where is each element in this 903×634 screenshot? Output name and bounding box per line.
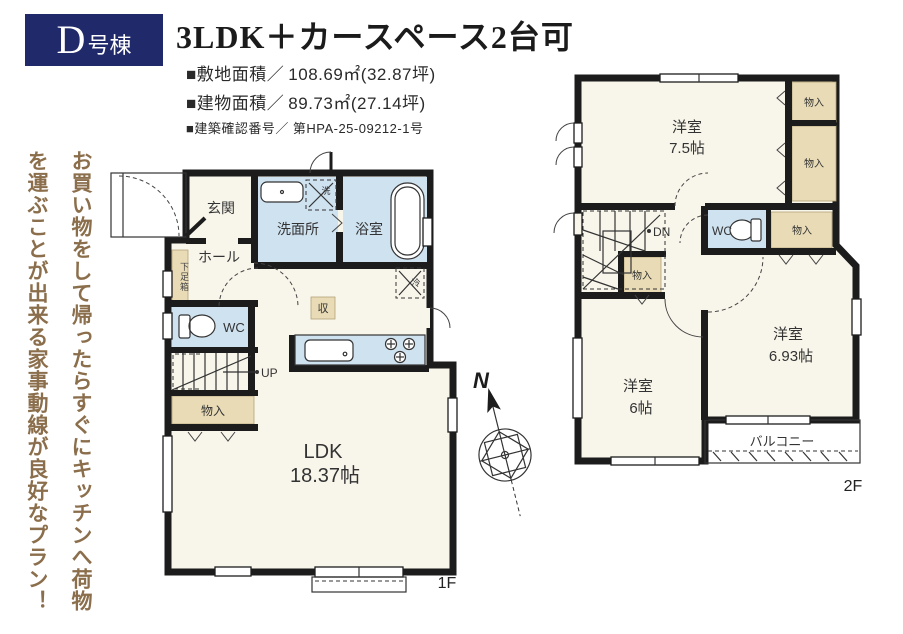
room-label-hall: ホール bbox=[198, 249, 240, 265]
floor1-plan: 洗 冷 bbox=[103, 150, 475, 616]
spec-site-area: ■敷地面積／108.69㎡(32.87坪) bbox=[186, 60, 436, 85]
room-label-genkan: 玄関 bbox=[207, 200, 235, 216]
room-label-storage: 収 bbox=[318, 302, 329, 315]
room-label-closet2f-3: 物入 bbox=[632, 269, 652, 282]
room-label-closet2f-2: 物入 bbox=[804, 157, 824, 170]
compass-rose bbox=[463, 382, 545, 523]
room-label-closet2f-4: 物入 bbox=[792, 224, 812, 237]
washer-label: 洗 bbox=[321, 185, 330, 196]
stairs-up-label: UP bbox=[261, 366, 278, 380]
compass-north-label: N bbox=[473, 368, 490, 393]
room-label-ldk-size: 18.37帖 bbox=[290, 464, 360, 487]
spec-list: ■敷地面積／108.69㎡(32.87坪) ■建物面積／89.73㎡(27.14… bbox=[186, 60, 436, 141]
kitchen-sink bbox=[305, 340, 353, 361]
room-label-closet2f-1: 物入 bbox=[804, 96, 824, 109]
room-label-washroom: 洗面所 bbox=[277, 221, 319, 237]
room-label-ldk: LDK bbox=[304, 441, 344, 463]
toilet-2f bbox=[730, 219, 761, 241]
floor2-label: 2F bbox=[844, 478, 863, 495]
room-label-bedroom3: 洋室 bbox=[623, 378, 653, 395]
spec-site-area-label: ■敷地面積／ bbox=[186, 65, 284, 84]
spec-building-area: ■建物面積／89.73㎡(27.14坪) bbox=[186, 89, 436, 114]
kitchen-counter bbox=[295, 335, 425, 365]
fridge-label: 冷 bbox=[411, 277, 420, 288]
toilet-1f bbox=[179, 315, 215, 338]
balcony: バルコニー bbox=[705, 420, 860, 463]
spec-site-area-value: 108.69㎡(32.87坪) bbox=[288, 65, 435, 84]
balcony-label: バルコニー bbox=[750, 434, 815, 449]
room-label-bedroom1: 洋室 bbox=[672, 119, 702, 136]
floor1-label: 1F bbox=[438, 575, 457, 592]
washbasin bbox=[261, 182, 303, 202]
room-label-closet-1f: 物入 bbox=[201, 404, 225, 418]
room-label-bedroom2-size: 6.93帖 bbox=[769, 348, 813, 365]
spec-permit-label: ■建築確認番号／ bbox=[186, 121, 289, 136]
porch bbox=[111, 173, 186, 237]
room-label-wc-2f: WC bbox=[712, 224, 732, 238]
spec-permit-number: ■建築確認番号／第HPA-25-09212-1号 bbox=[186, 118, 436, 137]
room-label-bathroom: 浴室 bbox=[355, 221, 383, 237]
floorplan-flyer: D 号棟 3LDK＋カースペース2台可 ■敷地面積／108.69㎡(32.87坪… bbox=[0, 0, 903, 634]
building-badge: D 号棟 bbox=[25, 14, 163, 66]
page-title: 3LDK＋カースペース2台可 bbox=[176, 12, 574, 58]
room-label-bedroom3-size: 6帖 bbox=[629, 400, 652, 417]
tagline: お買い物をして帰ったらすぐにキッチンへ荷物を運ぶことが出来る家事動線が良好なプラ… bbox=[10, 150, 102, 632]
compass: N bbox=[455, 360, 555, 520]
bathtub bbox=[391, 183, 424, 259]
building-letter: D bbox=[57, 20, 86, 60]
spec-building-area-value: 89.73㎡(27.14坪) bbox=[288, 94, 425, 113]
room-label-wc-1f: WC bbox=[223, 320, 245, 335]
building-suffix: 号棟 bbox=[87, 20, 131, 60]
spec-permit-value: 第HPA-25-09212-1号 bbox=[293, 121, 424, 136]
room-label-bedroom2: 洋室 bbox=[773, 326, 803, 343]
room-label-shoe-cabinet: 下足箱 bbox=[177, 252, 191, 302]
room-label-bedroom1-size: 7.5帖 bbox=[669, 140, 705, 157]
floor2-plan: バルコニー bbox=[545, 55, 903, 500]
spec-building-area-label: ■建物面積／ bbox=[186, 94, 284, 113]
stairs-down-label: DN bbox=[653, 225, 670, 239]
